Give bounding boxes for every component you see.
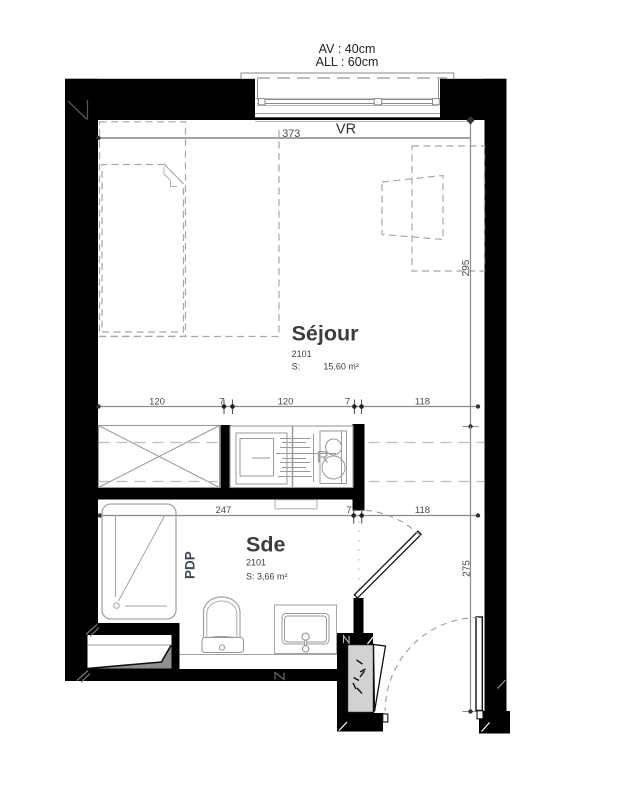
svg-text:7: 7 [345,397,350,408]
svg-text:2101: 2101 [246,558,266,568]
svg-text:R: R [317,448,329,467]
svg-text:S:: S: [292,361,301,371]
svg-text:7: 7 [346,505,351,516]
svg-text:S: 3,66 m²: S: 3,66 m² [246,572,288,582]
svg-text:118: 118 [415,505,430,516]
svg-text:120: 120 [149,397,165,408]
svg-text:120: 120 [278,397,294,408]
svg-text:275: 275 [461,560,472,577]
svg-text:2101: 2101 [292,349,312,359]
svg-text:ALL : 60cm: ALL : 60cm [316,55,379,69]
svg-text:PDP: PDP [183,551,198,579]
svg-text:295: 295 [461,259,472,276]
svg-text:15,60 m²: 15,60 m² [323,361,359,371]
svg-text:Sde: Sde [246,533,285,557]
svg-text:118: 118 [415,397,430,408]
svg-text:AV : 40cm: AV : 40cm [319,42,376,56]
svg-text:247: 247 [215,505,231,516]
svg-text:Séjour: Séjour [292,322,360,346]
svg-text:7: 7 [219,397,224,408]
svg-text:VR: VR [336,122,356,138]
